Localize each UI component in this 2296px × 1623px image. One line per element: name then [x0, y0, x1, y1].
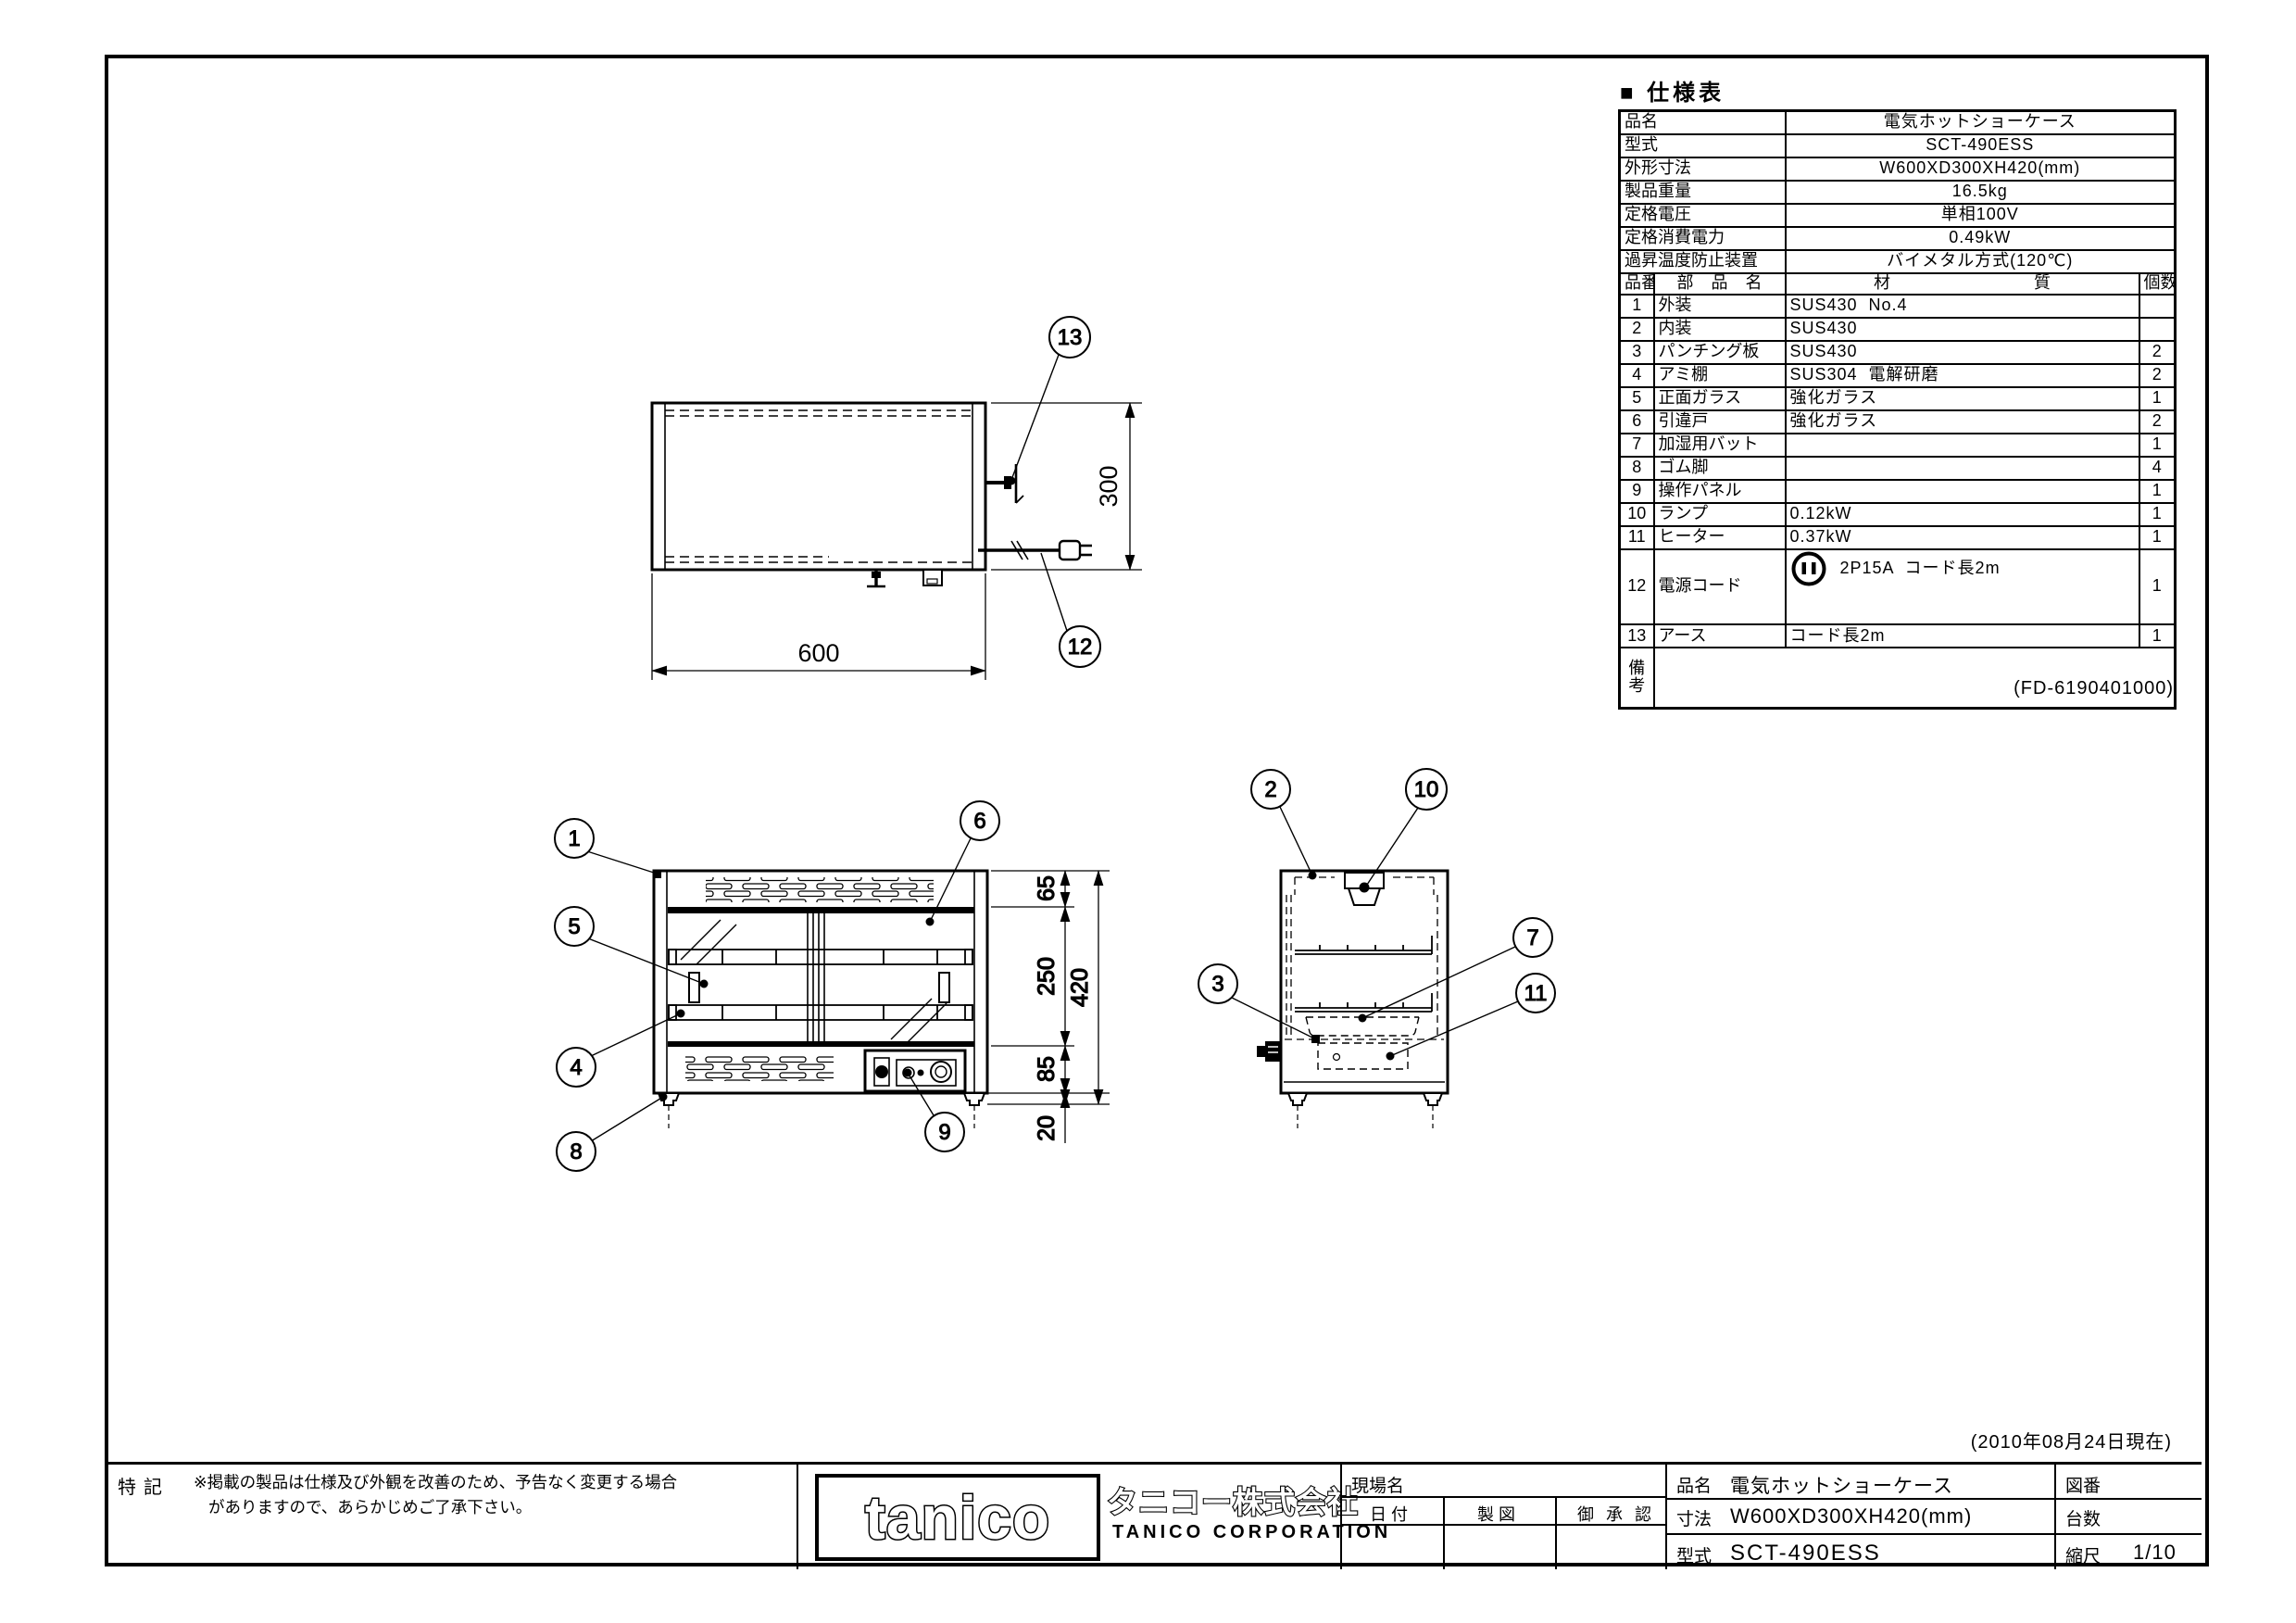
svg-text:11: 11: [1524, 981, 1548, 1006]
spec-row-denatsu: 定格電圧単相100V: [1620, 204, 2176, 227]
dim-top-width: 600: [652, 573, 985, 680]
balloon-2: 2: [1251, 770, 1317, 880]
balloon-4: 4: [557, 1010, 685, 1088]
product-name-value: 電気ホットショーケース: [1730, 1471, 1953, 1499]
spec-row-juryo: 製品重量16.5kg: [1620, 181, 2176, 204]
balloon-11: 11: [1386, 974, 1556, 1061]
site-name-label: 現場名: [1351, 1472, 1404, 1497]
product-name-label: 品名: [1676, 1472, 1712, 1497]
side-shelves: [1295, 936, 1432, 1012]
dim-label-65: 65: [1034, 875, 1060, 901]
balloon-8: 8: [557, 1093, 668, 1172]
parts-row: 6引違戸強化ガラス2: [1620, 410, 2176, 434]
balloon-5: 5: [555, 907, 709, 988]
svg-text:5: 5: [568, 914, 580, 939]
approval-label: 御 承 認: [1577, 1502, 1651, 1526]
parts-row: 10ランプ0.12kW1: [1620, 503, 2176, 526]
svg-text:9: 9: [938, 1120, 950, 1145]
power-switch: [875, 1065, 888, 1078]
side-view: 2 10 3 7: [1198, 769, 1555, 1128]
top-vent: [706, 877, 934, 902]
svg-text:1: 1: [568, 826, 580, 851]
svg-text:13: 13: [1058, 325, 1083, 350]
date-label: 日 付: [1370, 1502, 1408, 1526]
tanico-logo: tanico: [815, 1474, 1100, 1561]
parts-row: 11ヒーター0.37kW1: [1620, 526, 2176, 549]
tokki-label: 特記: [118, 1472, 169, 1499]
svg-text:3: 3: [1211, 972, 1223, 997]
spec-row-hinmei: 品名電気ホットショーケース: [1620, 111, 2176, 134]
svg-text:8: 8: [570, 1139, 582, 1164]
svg-text:6: 6: [973, 809, 985, 834]
parts-row: 9操作パネル1: [1620, 480, 2176, 503]
parts-row: 4アミ棚SUS304 電解研磨2: [1620, 364, 2176, 387]
parts-row: 2内装SUS430: [1620, 318, 2176, 341]
title-block: 特記 ※掲載の製品は仕様及び外観を改善のため、予告なく変更する場合 がありますの…: [105, 1462, 2202, 1569]
dim-label-250: 250: [1034, 957, 1060, 996]
svg-text:12: 12: [1068, 635, 1093, 660]
balloon-13: 13: [1008, 317, 1091, 485]
wire-shelf-lower: [669, 1005, 972, 1020]
front-view: 65 250 85 20 420 1 5: [555, 801, 1110, 1171]
model-label: 型式: [1676, 1542, 1712, 1567]
parts-row: 5正面ガラス強化ガラス1: [1620, 387, 2176, 410]
parts-row-power-cord: 12 電源コード 2P15A コード長2m 1: [1620, 549, 2176, 625]
door-handle-right: [939, 973, 949, 1002]
balloon-10: 10: [1360, 769, 1448, 893]
parts-row: 8ゴム脚4: [1620, 457, 2176, 480]
rear-fittings: [867, 570, 942, 586]
drawing-no-label: 図番: [2065, 1472, 2101, 1497]
power-cord: [978, 541, 1092, 560]
drawing-code: (FD-6190401000): [1852, 678, 2174, 699]
dim-label-300: 300: [1095, 465, 1123, 507]
parts-header: 品番 部 品 名 材 質 個数: [1620, 273, 2176, 295]
spec-table-title: ■ 仕様表: [1620, 74, 1725, 107]
dimensions-label: 寸法: [1676, 1505, 1712, 1530]
svg-text:2: 2: [1264, 777, 1276, 802]
earth-screw: [985, 464, 1023, 503]
note-line-1: ※掲載の製品は仕様及び外観を改善のため、予告なく変更する場合: [194, 1470, 677, 1493]
balloon-3: 3: [1198, 964, 1320, 1043]
side-legs: [1288, 1093, 1442, 1128]
spec-row-gaikei: 外形寸法W600XD300XH420(mm): [1620, 157, 2176, 181]
dim-label-85: 85: [1034, 1056, 1060, 1082]
cord-inlet: [1257, 1041, 1281, 1062]
drawing-sheet: 600 300 13 12: [0, 0, 2296, 1623]
dim-label-20: 20: [1034, 1115, 1060, 1141]
as-of-date: (2010年08月24日現在): [1852, 1427, 2172, 1453]
balloon-1: 1: [555, 819, 661, 878]
plug-icon: [1790, 550, 1827, 587]
spec-row-kasho: 過昇温度防止装置バイメタル方式(120℃): [1620, 250, 2176, 273]
unit-count-label: 台数: [2065, 1505, 2101, 1530]
parts-row: 1外装SUS430 No.4: [1620, 295, 2176, 318]
parts-row: 3パンチング板SUS4302: [1620, 341, 2176, 364]
spec-table: 品名電気ホットショーケース 型式SCT-490ESS 外形寸法W600XD300…: [1618, 109, 2177, 710]
scale-label: 縮尺: [2065, 1542, 2101, 1567]
draft-label: 製 図: [1477, 1502, 1515, 1526]
scale-value: 1/10: [2133, 1541, 2177, 1565]
door-handle-left: [689, 973, 699, 1002]
dimensions-value: W600XD300XH420(mm): [1730, 1504, 1972, 1529]
spec-row-shohi: 定格消費電力0.49kW: [1620, 227, 2176, 250]
svg-text:4: 4: [570, 1055, 582, 1080]
parts-row: 13アースコード長2m1: [1620, 624, 2176, 648]
company-name-jp: タニコー株式会社: [1107, 1478, 1359, 1522]
model-value: SCT-490ESS: [1730, 1541, 1881, 1566]
note-line-2: がありますので、あらかじめご了承下さい。: [208, 1495, 532, 1518]
top-view: 600 300 13 12: [652, 317, 1142, 680]
spec-row-katashiki: 型式SCT-490ESS: [1620, 134, 2176, 157]
dim-front: 65 250 85 20 420: [987, 871, 1110, 1143]
parts-row: 7加湿用バット1: [1620, 434, 2176, 457]
wire-shelf-upper: [669, 950, 972, 964]
svg-text:10: 10: [1414, 777, 1439, 802]
dim-label-420: 420: [1067, 968, 1093, 1007]
dim-label-600: 600: [797, 639, 839, 667]
bottom-vent: [685, 1056, 834, 1081]
svg-text:7: 7: [1526, 925, 1538, 950]
